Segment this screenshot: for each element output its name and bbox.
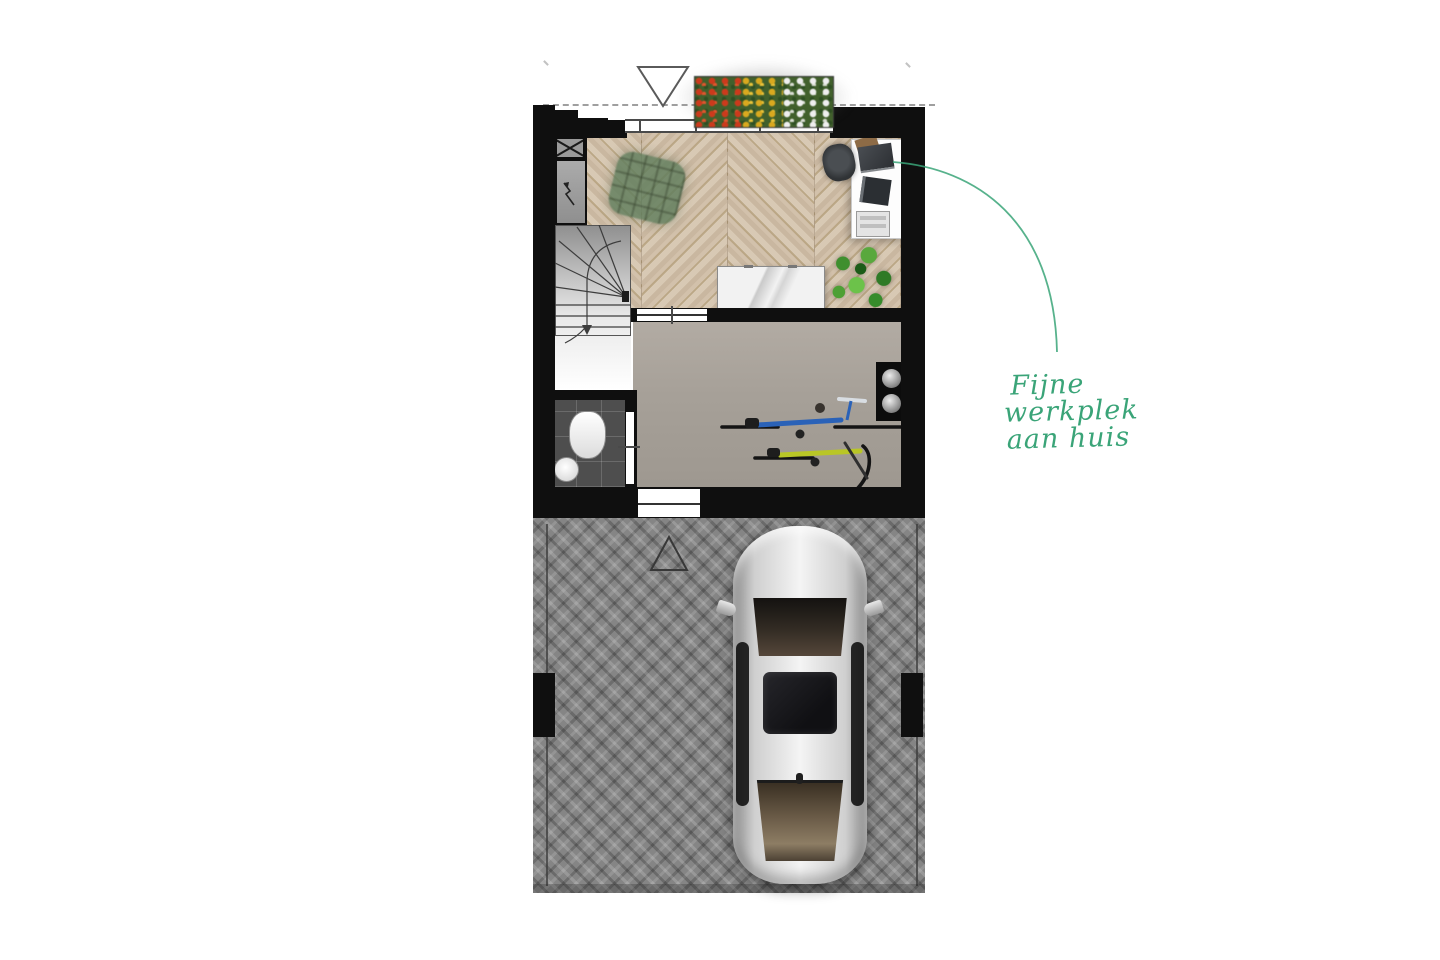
heating-unit-dial (882, 369, 901, 388)
sideboard-handle (788, 265, 797, 268)
sideboard (717, 266, 825, 313)
printer (856, 211, 890, 237)
door-rear-exit (638, 489, 700, 517)
flowers-yellow (742, 77, 783, 127)
corner-tick-right (905, 62, 911, 68)
annotation-text: Fijne werkplek aan huis (1003, 369, 1140, 453)
garage-concrete-floor (633, 322, 901, 487)
laptop (857, 143, 894, 173)
tablet (859, 176, 891, 206)
garden-wall-stub-left (533, 673, 555, 737)
potted-plant (828, 243, 896, 311)
meter-cupboard-x-icon (557, 139, 583, 157)
annotation-line-3: aan huis (1006, 423, 1139, 453)
paving-edge-row (533, 884, 925, 893)
car-sunroof (763, 672, 837, 734)
car-side-window-right (851, 642, 864, 806)
door-tick (618, 446, 640, 448)
zigzag-symbol-icon (557, 161, 585, 223)
door-tick (671, 306, 673, 324)
sideboard-handle (744, 265, 753, 268)
car-rear-window (751, 780, 849, 861)
toilet-bowl (569, 411, 606, 459)
walk-line-arrow (582, 325, 592, 335)
flowers-red (695, 77, 742, 127)
window-mullion (639, 121, 641, 131)
technical-cupboard (557, 161, 585, 223)
flowers-white (783, 77, 833, 127)
washbasin (554, 457, 579, 482)
floorplan-canvas: Fijne werkplek aan huis (0, 0, 1440, 960)
corner-tick-left (543, 60, 549, 66)
wall-left (533, 105, 555, 518)
wall-bottom (533, 487, 925, 518)
garden-wall-stub-right (901, 673, 923, 737)
heating-unit-dial (882, 394, 901, 413)
car-side-window-left (736, 642, 749, 806)
flower-planter (694, 76, 834, 128)
car-windshield (743, 598, 857, 656)
door-toilet (626, 412, 634, 484)
car (733, 526, 867, 884)
car-antenna (796, 773, 803, 784)
wall-stairs-toilet (533, 390, 633, 400)
